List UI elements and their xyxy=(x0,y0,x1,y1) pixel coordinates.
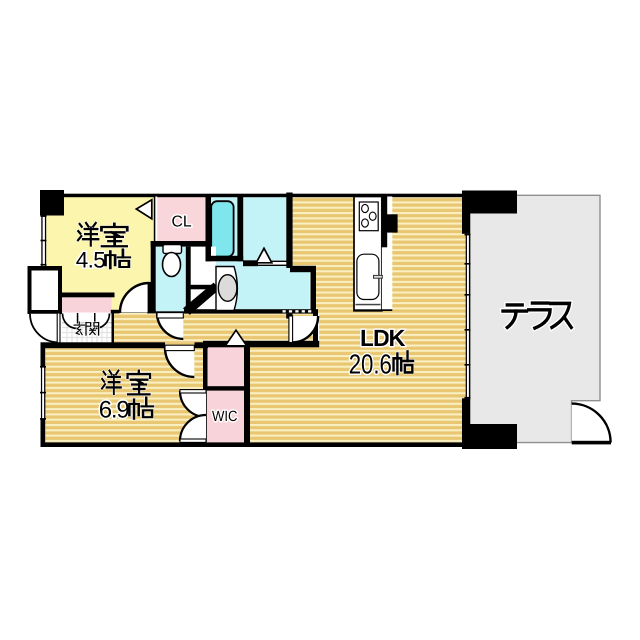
svg-text:LDK: LDK xyxy=(360,325,406,351)
svg-text:4.5: 4.5 xyxy=(76,248,106,273)
svg-text:6.9: 6.9 xyxy=(99,397,130,424)
svg-text:WIC: WIC xyxy=(212,409,238,425)
svg-text:CL: CL xyxy=(172,214,192,231)
svg-text:20.6: 20.6 xyxy=(349,348,392,379)
